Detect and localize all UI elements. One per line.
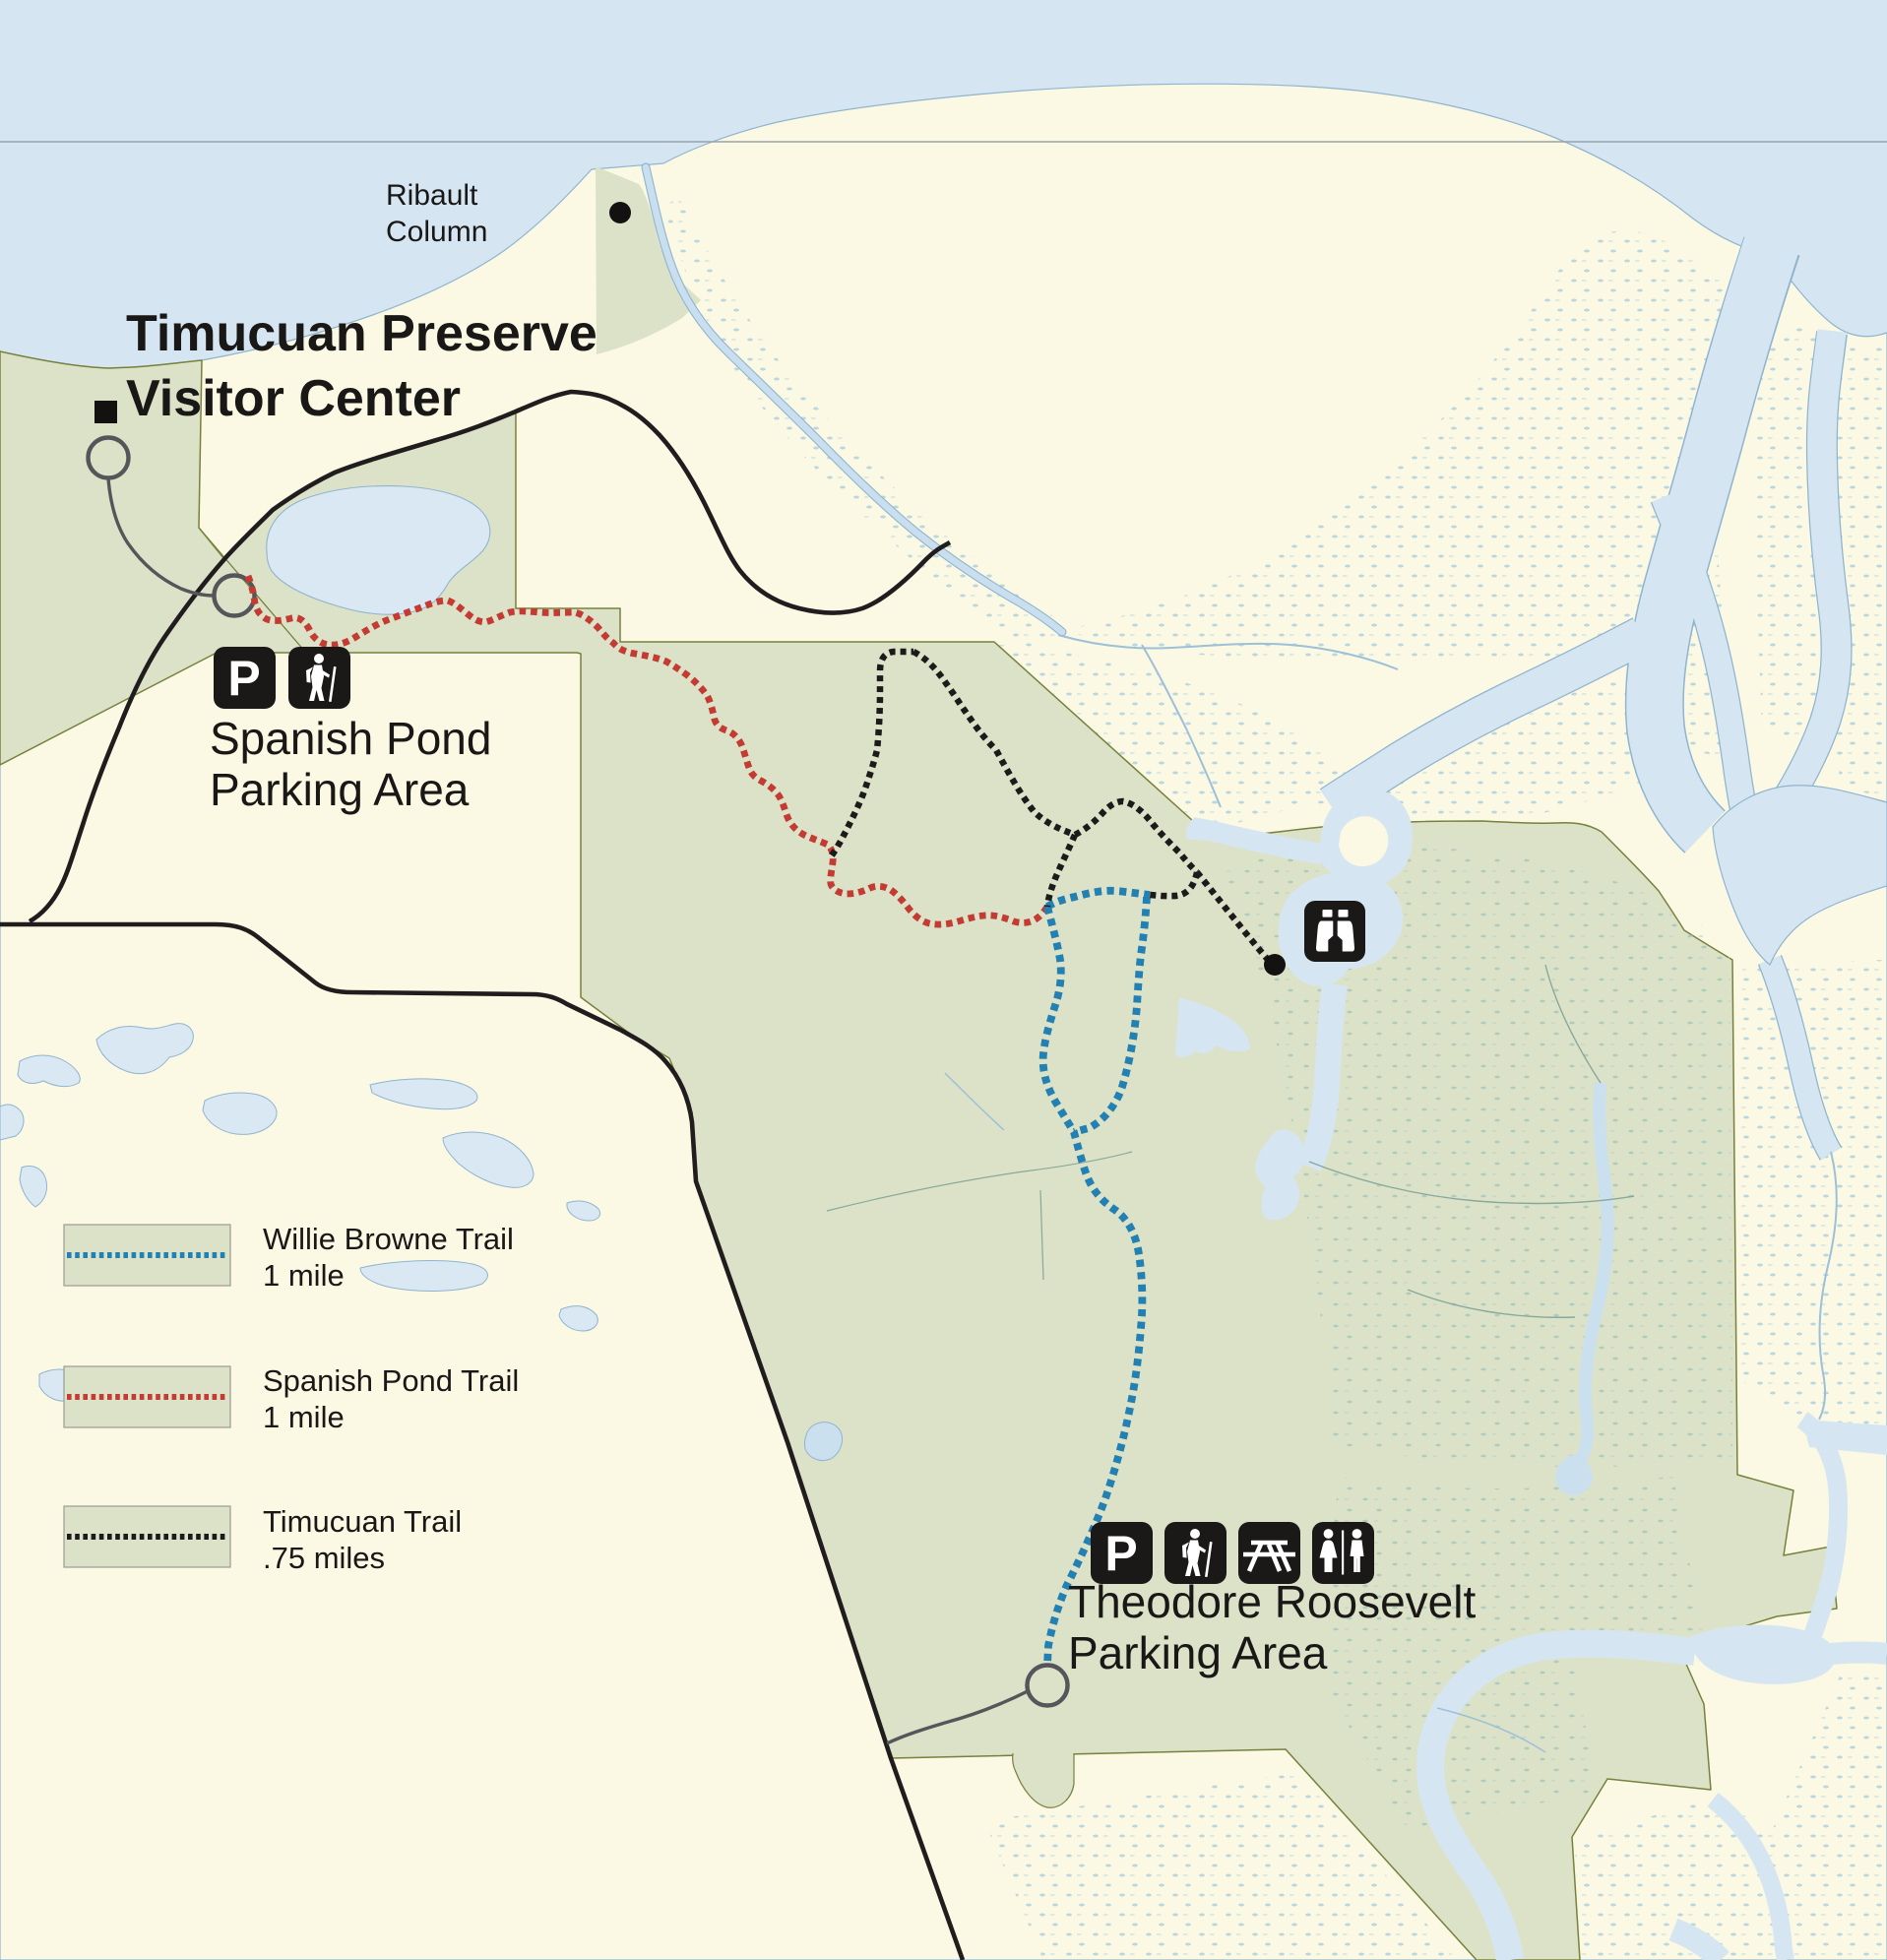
svg-text:1 mile: 1 mile (263, 1258, 345, 1293)
svg-text:Timucuan Trail: Timucuan Trail (263, 1504, 462, 1539)
svg-text:Parking Area: Parking Area (210, 764, 470, 815)
svg-text:Ribault: Ribault (386, 179, 478, 212)
svg-text:Spanish Pond: Spanish Pond (210, 713, 491, 764)
svg-text:Parking Area: Parking Area (1068, 1627, 1328, 1678)
svg-text:Timucuan Preserve: Timucuan Preserve (126, 305, 598, 362)
svg-text:Theodore Roosevelt: Theodore Roosevelt (1068, 1576, 1476, 1627)
svg-text:Spanish Pond Trail: Spanish Pond Trail (263, 1363, 519, 1398)
svg-text:P: P (227, 651, 260, 706)
svg-text:1 mile: 1 mile (263, 1400, 345, 1434)
svg-text:Visitor Center: Visitor Center (126, 370, 461, 427)
svg-text:Willie Browne Trail: Willie Browne Trail (263, 1222, 514, 1256)
svg-text:Column: Column (386, 216, 487, 248)
svg-text:.75 miles: .75 miles (263, 1541, 385, 1575)
svg-text:P: P (1104, 1526, 1137, 1581)
